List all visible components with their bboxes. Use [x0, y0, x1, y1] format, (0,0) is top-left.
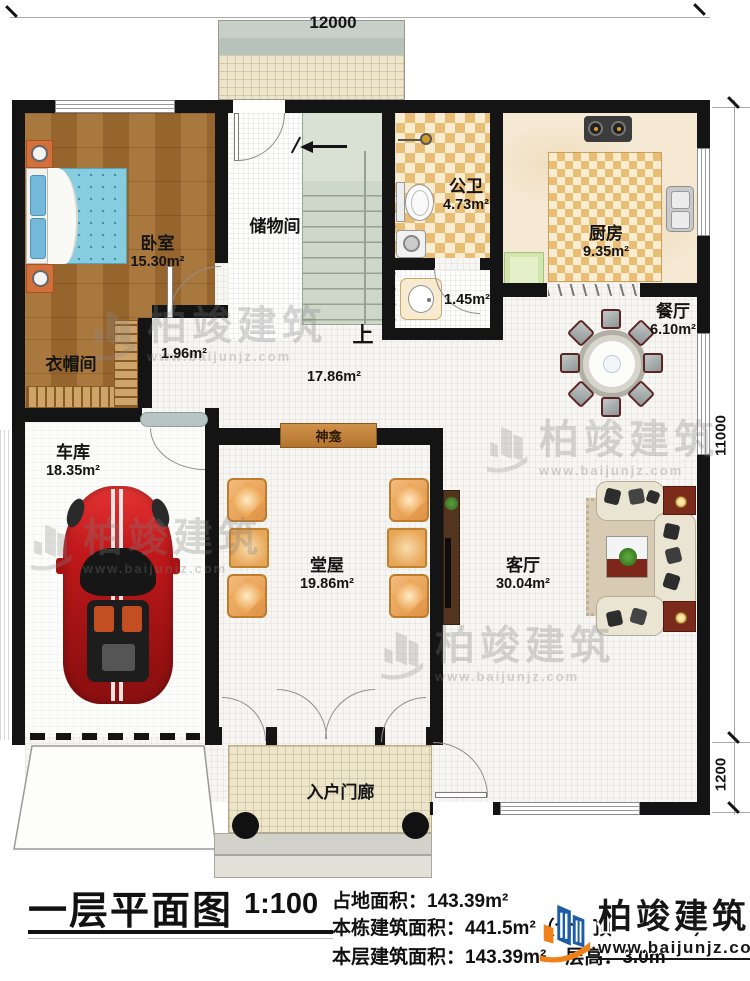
porch-column	[232, 812, 259, 839]
door-leaf	[234, 113, 239, 161]
stairs-up-label: 上	[350, 324, 376, 349]
dim-right-value: 11000	[713, 406, 730, 466]
dining-chair	[643, 353, 663, 373]
stove	[584, 116, 632, 142]
room-label-wash: 1.45m²	[438, 292, 496, 309]
dim-tick	[5, 5, 18, 18]
hall-armchair	[389, 478, 429, 522]
loveseat	[596, 481, 664, 521]
wall	[138, 318, 152, 408]
wall	[266, 727, 277, 745]
hall-armchair	[389, 574, 429, 618]
window	[697, 148, 710, 236]
room-label-bedroom: 卧室 15.30m²	[110, 234, 205, 271]
shrine-label: 神龛	[315, 426, 341, 445]
dim-tick	[693, 3, 706, 16]
kitchen-rug	[548, 152, 662, 282]
room-label-kitchen: 厨房 9.35m²	[574, 224, 638, 261]
door-leaf	[167, 266, 173, 318]
stair-arrow-line	[311, 145, 347, 148]
brand-name: 柏竣建筑	[598, 900, 750, 934]
brand-logo: 柏竣建筑 www.baijunjz.com	[536, 900, 750, 966]
shrine: 神龛	[280, 423, 377, 448]
coffee-table	[606, 536, 648, 578]
driveway	[8, 742, 223, 854]
room-label-dining: 餐厅 6.10m²	[643, 302, 703, 339]
end-table	[663, 601, 696, 632]
wall	[12, 408, 142, 422]
wall	[430, 428, 443, 727]
sofa-main	[654, 513, 696, 609]
window	[55, 100, 175, 113]
garage-door-dashed	[30, 733, 200, 740]
title-underline-thin	[28, 938, 333, 939]
dining-chair	[560, 353, 580, 373]
hall-armchair	[227, 478, 267, 522]
pillow-blue	[30, 175, 46, 216]
kitchen-folding-door	[548, 284, 640, 296]
wardrobe-rack	[26, 386, 116, 408]
window	[697, 333, 710, 455]
door-leaf	[435, 792, 487, 798]
hall-side-table	[229, 528, 269, 568]
side-path	[0, 430, 12, 740]
floor-plan-sheet: 12000 11000 1200	[0, 0, 750, 981]
title-underline	[28, 930, 333, 934]
porch-step	[214, 855, 432, 878]
dim-top-value: 12000	[293, 13, 373, 33]
dining-chair	[601, 397, 621, 417]
garage-inner-door	[140, 412, 208, 427]
dim-line-right	[734, 100, 735, 815]
nightstand	[26, 140, 53, 168]
wall	[12, 100, 25, 745]
wardrobe-rack	[114, 320, 138, 408]
wall	[205, 727, 222, 745]
wall	[395, 258, 435, 270]
washing-machine	[396, 230, 426, 258]
room-label-storage: 储物间	[230, 217, 320, 237]
plant-small	[445, 497, 458, 510]
toilet-tank	[396, 182, 405, 222]
window	[500, 802, 640, 815]
sheet-title: 一层平面图	[28, 880, 233, 936]
room-label-hall-area: 17.86m²	[298, 369, 370, 386]
hall-armchair	[227, 574, 267, 618]
wall	[205, 408, 219, 745]
kitchen-sink	[666, 186, 694, 232]
dining-chair	[601, 309, 621, 329]
pillow-blue	[30, 218, 46, 259]
door-opening	[233, 100, 285, 113]
brand-url: www.baijunjz.com	[598, 938, 750, 960]
room-label-corridor-area: 1.96m²	[155, 346, 213, 363]
car	[60, 486, 176, 708]
toilet-bowl	[405, 184, 434, 221]
wall	[503, 283, 547, 297]
wall	[219, 428, 280, 445]
porch-column	[402, 812, 429, 839]
room-label-cloakroom: 衣帽间	[38, 355, 104, 375]
dim-porch-value: 1200	[713, 745, 730, 805]
loveseat	[596, 596, 664, 636]
wall	[382, 328, 492, 340]
room-label-living: 客厅 30.04m²	[488, 556, 558, 593]
sheet-scale: 1:100	[244, 888, 318, 921]
wall	[382, 113, 395, 328]
room-label-garage: 车库 18.35m²	[40, 443, 106, 480]
wall	[640, 283, 697, 297]
room-label-bath: 公卫 4.73m²	[435, 177, 497, 214]
shower-valve-knob	[420, 133, 432, 145]
wash-basin	[400, 278, 442, 320]
end-table	[663, 486, 696, 515]
wall	[215, 113, 228, 263]
brand-logo-icon	[536, 900, 596, 966]
door-opening	[433, 802, 493, 815]
tv	[445, 538, 451, 608]
room-label-main-hall: 堂屋 19.86m²	[292, 556, 362, 593]
hall-side-table	[387, 528, 427, 568]
land-area-text: 占地面积：143.39m²	[332, 886, 508, 913]
room-label-porch: 入户门廊	[288, 783, 393, 803]
nightstand	[26, 264, 54, 293]
